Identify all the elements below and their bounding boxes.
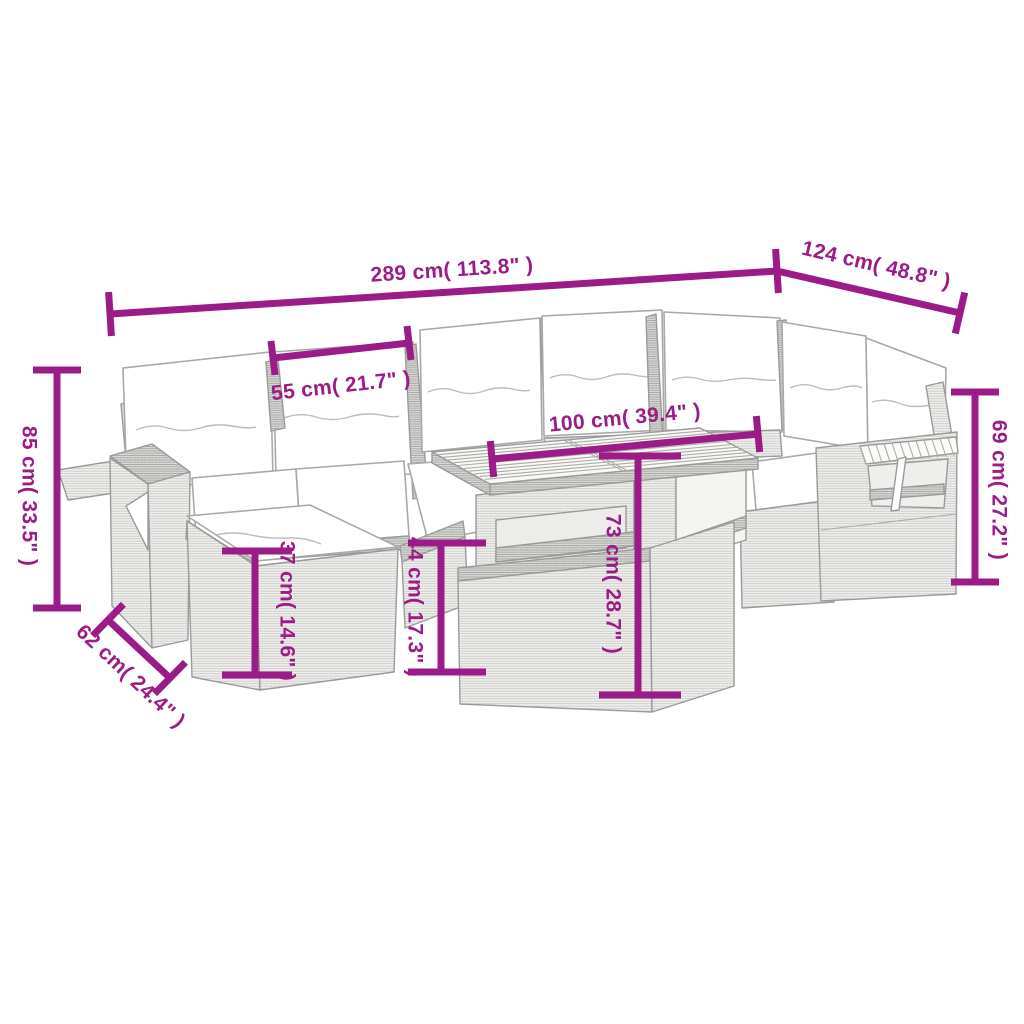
table-lower-side — [650, 522, 734, 712]
back-cushion — [273, 342, 415, 478]
dim-ottoman-height-label: 37 cm( 14.6" ) — [275, 541, 298, 681]
armrest-face — [110, 458, 152, 648]
dim-table-height-label: 73 cm( 28.7" ) — [601, 514, 624, 654]
furniture-set — [58, 310, 958, 712]
armrest-face — [148, 472, 190, 648]
dim-arm-height-label: 69 cm( 27.2" ) — [987, 420, 1010, 560]
dim-arm-height: 69 cm( 27.2" ) — [951, 392, 1010, 582]
sofa-right-section — [740, 432, 958, 608]
back-cushion — [420, 318, 542, 452]
dim-total-width-label: 289 cm( 113.8" ) — [370, 253, 534, 286]
product-dimension-image: 289 cm( 113.8" ) 124 cm( 48.8" ) 55 cm( … — [0, 0, 1024, 1024]
dim-back-height-label: 85 cm( 33.5" ) — [17, 426, 40, 566]
dim-seat-height-label: 44 cm( 17.3" ) — [403, 537, 426, 677]
dim-corner-depth: 124 cm( 48.8" ) — [777, 237, 965, 334]
armrest-recess — [868, 459, 948, 508]
sofa-left-arm — [58, 444, 190, 648]
furniture-diagram-svg: 289 cm( 113.8" ) 124 cm( 48.8" ) 55 cm( … — [0, 0, 1024, 1024]
